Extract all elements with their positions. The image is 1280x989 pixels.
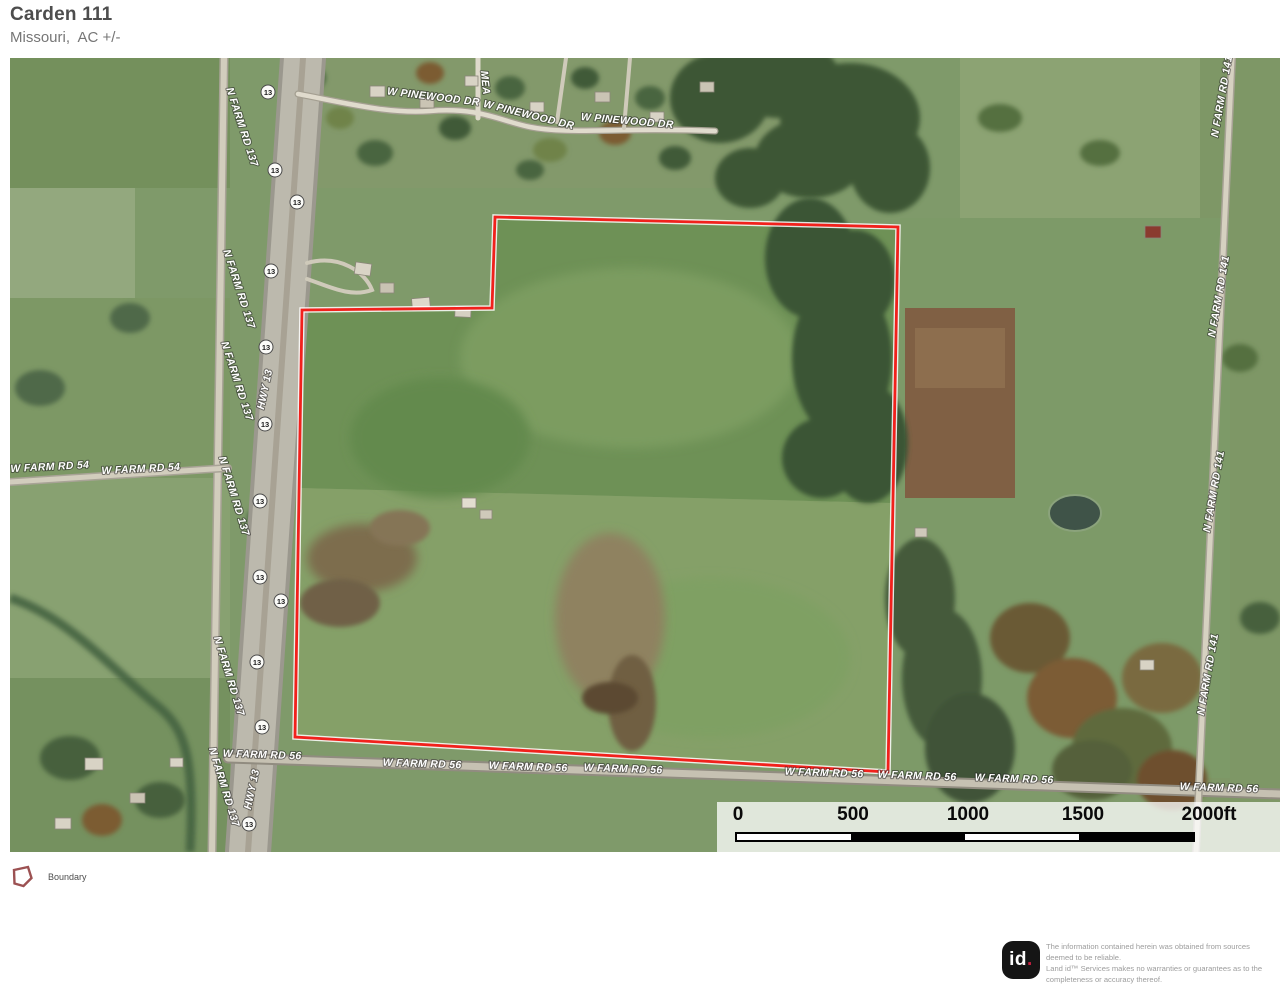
land-id-logo: id. <box>1002 941 1040 979</box>
scale-tick-500: 500 <box>837 804 869 826</box>
hwy-13-shield-icon: 13 <box>262 343 270 352</box>
legend-boundary-label: Boundary <box>48 872 87 882</box>
scale-segment <box>965 834 1079 840</box>
hwy-13-shield-icon: 13 <box>253 658 261 667</box>
scale-segment <box>737 834 851 840</box>
hwy-13-shield-icon: 13 <box>267 267 275 276</box>
hwy-13-shield-icon: 13 <box>277 597 285 606</box>
logo-dot: . <box>1027 949 1033 971</box>
scale-tick-1500: 1500 <box>1062 804 1104 826</box>
page-title: Carden 111 <box>10 4 120 26</box>
hwy-13-shield-icon: 13 <box>264 88 272 97</box>
hwy-13-shield-icon: 13 <box>258 723 266 732</box>
logo-text: id <box>1009 949 1027 971</box>
scale-tick-1000: 1000 <box>947 804 989 826</box>
map-header: Carden 111 Missouri, AC +/- <box>10 4 120 46</box>
hwy-13-shield-icon: 13 <box>256 573 264 582</box>
scale-tick-0: 0 <box>733 804 744 826</box>
hwy-13-shield-icon: 13 <box>261 420 269 429</box>
footer: id. The information contained herein was… <box>1002 941 1280 985</box>
page: Carden 111 Missouri, AC +/- <box>0 0 1280 989</box>
scale-tick-2000ft: 2000ft <box>1182 804 1237 826</box>
scale-segment <box>1079 834 1193 840</box>
boundary-legend-icon <box>8 864 34 890</box>
aerial-terrain <box>10 58 1280 852</box>
disclaimer-line: deemed to be reliable. <box>1046 952 1280 963</box>
page-subtitle: Missouri, AC +/- <box>10 29 120 46</box>
hwy-13-shield-icon: 13 <box>293 198 301 207</box>
disclaimer-line: The information contained herein was obt… <box>1046 941 1280 952</box>
hwy-13-shield-icon: 13 <box>256 497 264 506</box>
disclaimer-text: The information contained herein was obt… <box>1046 941 1280 985</box>
hwy-13-shield-icon: 13 <box>245 820 253 829</box>
scale-bar-segments <box>735 832 1195 842</box>
disclaimer-line: Land id™ Services makes no warranties or… <box>1046 963 1280 974</box>
disclaimer-line: completeness or accuracy thereof. <box>1046 974 1280 985</box>
aerial-map[interactable]: W PINEWOOD DR W PINEWOOD DR W PINEWOOD D… <box>10 58 1280 852</box>
hwy-13-shield-icon: 13 <box>271 166 279 175</box>
road-label-mea: MEA <box>478 70 492 95</box>
scale-segment <box>851 834 965 840</box>
legend: Boundary <box>8 864 87 890</box>
scale-bar: 0 500 1000 1500 2000ft <box>717 802 1280 852</box>
